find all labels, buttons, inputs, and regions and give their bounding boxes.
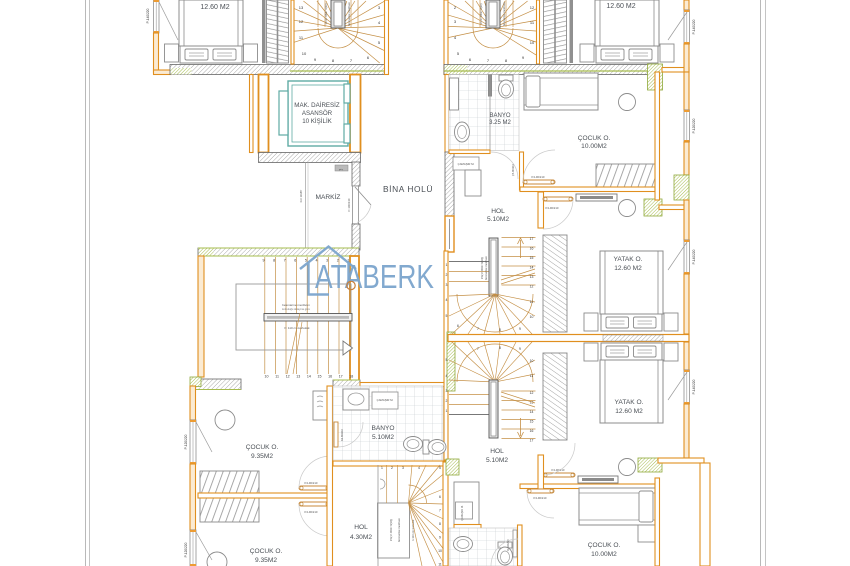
svg-text:14: 14 <box>307 375 311 379</box>
svg-text:3: 3 <box>446 389 448 393</box>
svg-text:1: 1 <box>446 409 448 413</box>
svg-text:18: 18 <box>349 375 353 379</box>
svg-text:9: 9 <box>263 259 265 263</box>
svg-text:10: 10 <box>530 359 534 363</box>
svg-text:betonarme merdiven: betonarme merdiven <box>484 256 488 280</box>
svg-text:1%(17.96/27.9(30)): 1%(17.96/27.9(30)) <box>480 257 484 279</box>
svg-text:9: 9 <box>519 347 521 351</box>
svg-text:17x17.96/27.9(30): 17x17.96/27.9(30) <box>324 3 328 24</box>
svg-text:3: 3 <box>402 466 404 470</box>
svg-text:9.35M2: 9.35M2 <box>251 453 273 460</box>
svg-text:5.10M2: 5.10M2 <box>487 216 509 223</box>
svg-text:4.30M2: 4.30M2 <box>350 534 372 541</box>
svg-text:ÇAMAŞIR M.: ÇAMAŞIR M. <box>458 162 475 166</box>
svg-text:betonarme merdiven: betonarme merdiven <box>502 2 506 26</box>
svg-text:ATABERK: ATABERK <box>315 258 434 295</box>
svg-text:K3-90/210: K3-90/210 <box>546 206 559 210</box>
svg-text:16: 16 <box>530 429 534 433</box>
svg-text:betonarme merdiven: betonarme merdiven <box>347 2 351 26</box>
svg-text:5: 5 <box>446 358 448 362</box>
svg-text:5.10M2: 5.10M2 <box>486 457 508 464</box>
svg-text:1: 1 <box>446 263 448 267</box>
svg-text:P-140/220: P-140/220 <box>146 8 150 23</box>
svg-text:K3-90/210: K3-90/210 <box>305 510 318 514</box>
svg-text:12: 12 <box>299 19 304 24</box>
svg-text:12.60 M2: 12.60 M2 <box>606 3 635 10</box>
svg-text:10: 10 <box>530 315 534 319</box>
svg-text:9: 9 <box>314 57 317 62</box>
svg-text:1%(17.96/27.9(30)): 1%(17.96/27.9(30)) <box>389 519 393 541</box>
svg-text:8: 8 <box>505 58 508 63</box>
svg-text:14: 14 <box>530 410 534 414</box>
svg-text:17x17.96/27.9(30): 17x17.96/27.9(30) <box>479 3 483 24</box>
svg-text:P-140/220: P-140/220 <box>692 249 696 264</box>
svg-text:ÇOCUK O.: ÇOCUK O. <box>250 548 283 555</box>
svg-text:9: 9 <box>522 55 525 60</box>
svg-text:3: 3 <box>378 5 381 10</box>
svg-text:13: 13 <box>530 275 534 279</box>
svg-text:HOL: HOL <box>490 448 504 455</box>
svg-text:9.35M2: 9.35M2 <box>255 557 277 564</box>
svg-text:10: 10 <box>530 40 535 45</box>
svg-text:2: 2 <box>391 466 393 470</box>
svg-text:13: 13 <box>296 375 300 379</box>
svg-text:2: 2 <box>446 273 448 277</box>
svg-text:2: 2 <box>454 5 457 10</box>
svg-text:8: 8 <box>332 58 335 63</box>
svg-text:12.60 M2: 12.60 M2 <box>200 4 229 11</box>
svg-text:MARKİZ: MARKİZ <box>316 192 341 201</box>
svg-text:10: 10 <box>438 549 442 553</box>
svg-text:10: 10 <box>265 375 269 379</box>
svg-text:12: 12 <box>530 391 534 395</box>
svg-text:BANYO: BANYO <box>489 113 510 119</box>
svg-text:P-100/130: P-100/130 <box>347 198 351 211</box>
svg-text:17: 17 <box>530 439 534 443</box>
svg-text:D-0 110/87: D-0 110/87 <box>299 189 303 202</box>
svg-text:10.00M2: 10.00M2 <box>591 551 617 558</box>
svg-text:11: 11 <box>438 563 442 566</box>
svg-text:12: 12 <box>530 285 534 289</box>
svg-text:8: 8 <box>499 328 501 332</box>
svg-text:K3-90/210: K3-90/210 <box>534 496 547 500</box>
svg-text:15: 15 <box>530 256 534 260</box>
svg-text:P-140/220: P-140/220 <box>692 19 696 34</box>
svg-text:7: 7 <box>284 259 286 263</box>
svg-text:Ç5-80/210: Ç5-80/210 <box>511 163 515 176</box>
svg-text:5: 5 <box>378 40 381 45</box>
svg-text:5.10M2: 5.10M2 <box>372 434 394 441</box>
svg-text:P-140/220: P-140/220 <box>692 379 696 394</box>
svg-text:11: 11 <box>275 375 279 379</box>
svg-text:7: 7 <box>439 509 441 513</box>
svg-text:K2-80/210: K2-80/210 <box>340 428 344 441</box>
svg-text:P-120/220: P-120/220 <box>184 542 188 557</box>
svg-text:ÇOCUK O.: ÇOCUK O. <box>246 444 279 451</box>
svg-text:10: 10 <box>302 51 307 56</box>
svg-text:4: 4 <box>446 374 448 378</box>
svg-text:6: 6 <box>367 55 370 60</box>
svg-text:7: 7 <box>487 58 490 63</box>
svg-text:7: 7 <box>477 327 479 331</box>
svg-text:5: 5 <box>439 466 441 470</box>
svg-text:MAK. DAİRESİZ: MAK. DAİRESİZ <box>294 102 340 109</box>
svg-text:12: 12 <box>286 375 290 379</box>
svg-text:8: 8 <box>439 522 441 526</box>
svg-text:11: 11 <box>530 374 534 378</box>
svg-text:9: 9 <box>439 536 441 540</box>
svg-text:8: 8 <box>499 346 501 350</box>
svg-text:6: 6 <box>457 324 459 328</box>
svg-text:5: 5 <box>446 314 448 318</box>
svg-text:5: 5 <box>305 259 307 263</box>
svg-text:korkuluğu detayına göre: korkuluğu detayına göre <box>282 307 310 311</box>
svg-text:6: 6 <box>469 57 472 62</box>
svg-text:3: 3 <box>446 283 448 287</box>
svg-text:8: 8 <box>273 259 275 263</box>
svg-text:15: 15 <box>318 375 322 379</box>
svg-text:6: 6 <box>294 259 296 263</box>
svg-text:6: 6 <box>439 495 441 499</box>
svg-text:ÇAMAŞIR M.: ÇAMAŞIR M. <box>460 505 464 521</box>
svg-text:K3-90/210: K3-90/210 <box>305 481 318 485</box>
svg-text:ÇOCUK O.: ÇOCUK O. <box>588 542 621 549</box>
svg-text:betonarme merdiven: betonarme merdiven <box>282 303 310 307</box>
svg-text:YATAK O.: YATAK O. <box>614 256 643 263</box>
svg-text:betonarme merdiven: betonarme merdiven <box>397 518 401 542</box>
svg-text:ÇAMAŞIR M.: ÇAMAŞIR M. <box>377 398 394 402</box>
svg-text:7: 7 <box>350 58 353 63</box>
svg-text:YATAK O.: YATAK O. <box>615 399 644 406</box>
svg-text:17: 17 <box>530 237 534 241</box>
svg-text:BİNA HOLÜ: BİNA HOLÜ <box>383 184 433 194</box>
svg-text:16: 16 <box>530 247 534 251</box>
svg-text:ASANSÖR: ASANSÖR <box>302 110 333 117</box>
svg-text:2: 2 <box>446 399 448 403</box>
svg-text:3.25 M2: 3.25 M2 <box>489 120 511 126</box>
svg-text:10 KİŞİLİK: 10 KİŞİLİK <box>302 118 332 125</box>
svg-text:ÇOCUK O.: ÇOCUK O. <box>578 135 611 142</box>
svg-text:16: 16 <box>328 375 332 379</box>
svg-text:HOL: HOL <box>354 524 368 531</box>
svg-text:HOL: HOL <box>491 208 505 215</box>
svg-text:7: 7 <box>477 347 479 351</box>
svg-text:P-120/220: P-120/220 <box>184 434 188 449</box>
svg-text:3: 3 <box>454 19 457 24</box>
svg-text:12: 12 <box>530 5 535 10</box>
svg-text:9: 9 <box>519 327 521 331</box>
svg-text:P-120/220: P-120/220 <box>692 118 696 133</box>
svg-text:13: 13 <box>299 5 304 10</box>
svg-text:12.60 M2: 12.60 M2 <box>615 408 643 415</box>
svg-text:17: 17 <box>339 375 343 379</box>
svg-text:12.60 M2: 12.60 M2 <box>614 265 642 272</box>
svg-text:15: 15 <box>530 420 534 424</box>
svg-text:14: 14 <box>530 266 534 270</box>
svg-text:1: 1 <box>381 466 383 470</box>
svg-text:BANYO: BANYO <box>371 425 394 432</box>
svg-text:10.00M2: 10.00M2 <box>581 143 607 150</box>
svg-text:K3-90/210: K3-90/210 <box>532 175 545 179</box>
svg-text:4: 4 <box>378 20 381 25</box>
svg-text:11: 11 <box>530 300 534 304</box>
svg-text:4: 4 <box>418 466 420 470</box>
svg-text:4: 4 <box>446 298 448 302</box>
svg-text:5: 5 <box>457 51 460 56</box>
